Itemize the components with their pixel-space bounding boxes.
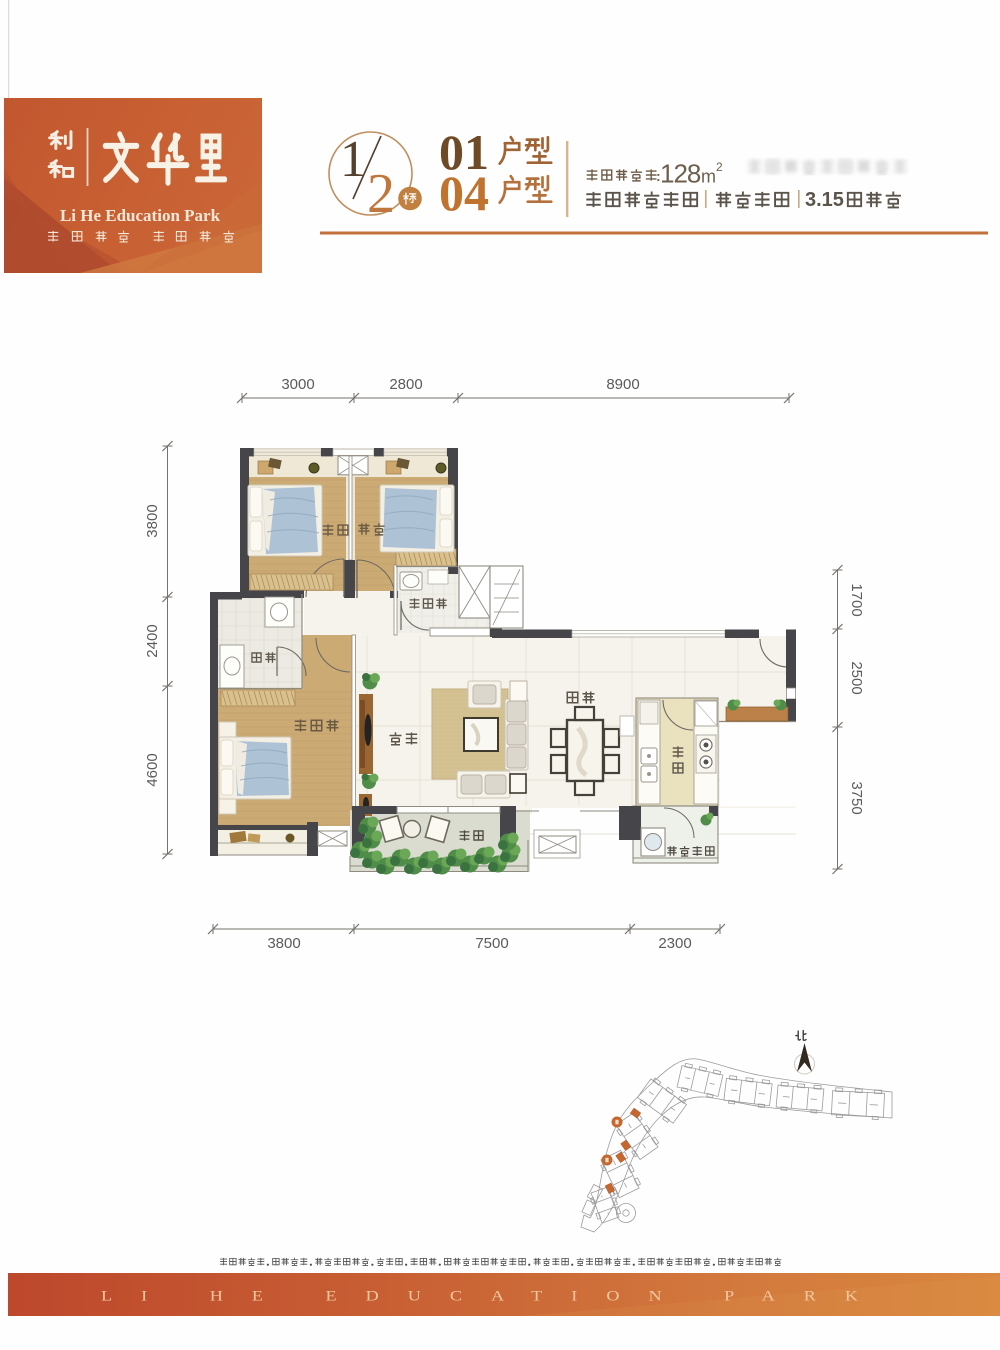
svg-text:2500: 2500 xyxy=(848,661,865,694)
svg-text:1700: 1700 xyxy=(848,583,865,616)
svg-text:8900: 8900 xyxy=(606,376,639,393)
svg-text:2: 2 xyxy=(367,163,395,225)
svg-text:Li He Education Park: Li He Education Park xyxy=(60,206,221,225)
svg-text:3800: 3800 xyxy=(144,504,161,537)
svg-text:4600: 4600 xyxy=(144,753,161,786)
svg-text:LI HE EDUCATION PARK: LI HE EDUCATION PARK xyxy=(101,1289,887,1305)
svg-text:2: 2 xyxy=(716,160,723,174)
svg-text:128: 128 xyxy=(660,159,701,189)
svg-text:3800: 3800 xyxy=(267,935,300,952)
svg-text:m: m xyxy=(701,167,716,187)
svg-text:2800: 2800 xyxy=(389,376,422,393)
svg-text:2400: 2400 xyxy=(144,624,161,657)
svg-text:2300: 2300 xyxy=(658,935,691,952)
svg-text:04: 04 xyxy=(439,165,489,221)
svg-text:7500: 7500 xyxy=(475,935,508,952)
svg-text:3000: 3000 xyxy=(281,376,314,393)
svg-text:3.15: 3.15 xyxy=(805,189,844,211)
svg-text:3750: 3750 xyxy=(848,781,865,814)
